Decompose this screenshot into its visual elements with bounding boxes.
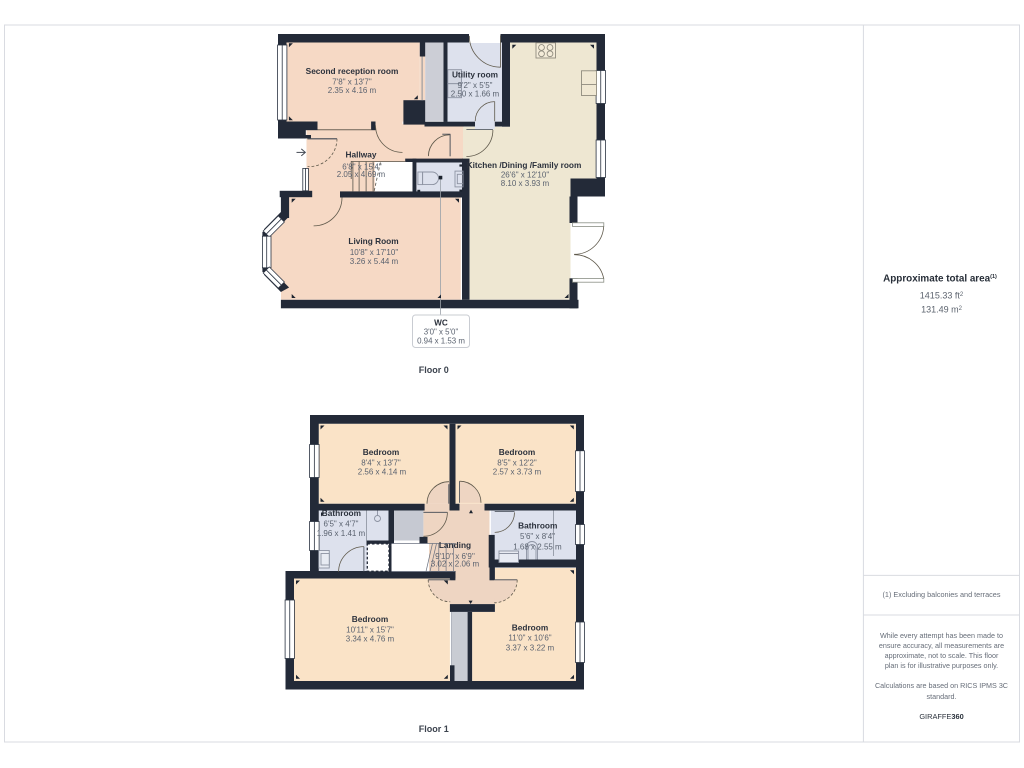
svg-text:2.57 x 3.73 m: 2.57 x 3.73 m (493, 467, 542, 476)
svg-text:Approximate total area(1): Approximate total area(1) (883, 274, 997, 285)
svg-text:3.02 x 2.06 m: 3.02 x 2.06 m (431, 560, 480, 569)
svg-text:Calculations are based on RICS: Calculations are based on RICS IPMS 3C (875, 681, 1008, 690)
svg-text:8.10 x 3.93 m: 8.10 x 3.93 m (501, 179, 550, 188)
svg-text:3'0" x 5'0": 3'0" x 5'0" (424, 328, 459, 337)
svg-text:Bedroom: Bedroom (512, 622, 548, 632)
svg-text:26'6" x 12'10": 26'6" x 12'10" (501, 170, 549, 179)
svg-text:(1) Excluding balconies and te: (1) Excluding balconies and terraces (882, 590, 1000, 599)
svg-text:1415.33 ft2: 1415.33 ft2 (920, 291, 964, 301)
svg-text:0.94 x 1.53 m: 0.94 x 1.53 m (417, 336, 465, 345)
svg-text:Bedroom: Bedroom (499, 447, 535, 457)
svg-text:Bathroom: Bathroom (322, 508, 361, 518)
svg-text:plan is for illustrative purpo: plan is for illustrative purposes only. (885, 661, 998, 670)
svg-text:1.68 x 2.55 m: 1.68 x 2.55 m (513, 542, 562, 551)
svg-text:11'0" x 10'6": 11'0" x 10'6" (508, 634, 551, 643)
svg-text:standard.: standard. (927, 692, 957, 701)
svg-text:2.50 x 1.66 m: 2.50 x 1.66 m (451, 90, 500, 99)
svg-text:131.49 m2: 131.49 m2 (921, 305, 963, 315)
svg-text:6'5" x 4'7": 6'5" x 4'7" (324, 520, 359, 529)
svg-text:Bedroom: Bedroom (363, 447, 399, 457)
svg-text:3.26 x 5.44 m: 3.26 x 5.44 m (350, 257, 399, 266)
svg-text:2.05 x 4.69 m: 2.05 x 4.69 m (337, 170, 386, 179)
svg-text:approximate, not to scale. Thi: approximate, not to scale. This floor (885, 651, 999, 660)
svg-text:Living Room: Living Room (348, 236, 398, 246)
svg-text:10'8" x 17'10": 10'8" x 17'10" (350, 248, 398, 257)
svg-text:2.56 x 4.14 m: 2.56 x 4.14 m (358, 467, 407, 476)
svg-text:GIRAFFE360: GIRAFFE360 (919, 712, 963, 721)
svg-text:Floor 1: Floor 1 (419, 724, 449, 734)
svg-text:3.34 x 4.76 m: 3.34 x 4.76 m (346, 634, 395, 643)
svg-text:Hallway: Hallway (346, 150, 377, 160)
svg-text:8'5" x 12'2": 8'5" x 12'2" (497, 458, 537, 467)
svg-text:1.96 x 1.41 m: 1.96 x 1.41 m (317, 529, 366, 538)
svg-text:10'11" x 15'7": 10'11" x 15'7" (346, 625, 394, 634)
svg-text:Bedroom: Bedroom (352, 614, 388, 624)
svg-text:Utility room: Utility room (452, 70, 498, 80)
svg-text:8'4" x 13'7": 8'4" x 13'7" (361, 458, 401, 467)
svg-text:2.35 x 4.16 m: 2.35 x 4.16 m (328, 86, 377, 95)
svg-text:WC: WC (434, 319, 448, 328)
svg-text:ensure accuracy, all measureme: ensure accuracy, all measurements are (879, 641, 1004, 650)
svg-text:Kitchen /Dining /Family room: Kitchen /Dining /Family room (467, 160, 582, 170)
svg-text:While every attempt has been m: While every attempt has been made to (880, 631, 1003, 640)
svg-text:Landing: Landing (439, 540, 471, 550)
svg-text:Bathroom: Bathroom (518, 521, 557, 531)
svg-text:3.37 x 3.22 m: 3.37 x 3.22 m (506, 644, 555, 653)
svg-text:Floor 0: Floor 0 (419, 365, 449, 375)
svg-text:Second reception room: Second reception room (306, 66, 399, 76)
svg-text:5'6" x 8'4": 5'6" x 8'4" (520, 532, 555, 541)
